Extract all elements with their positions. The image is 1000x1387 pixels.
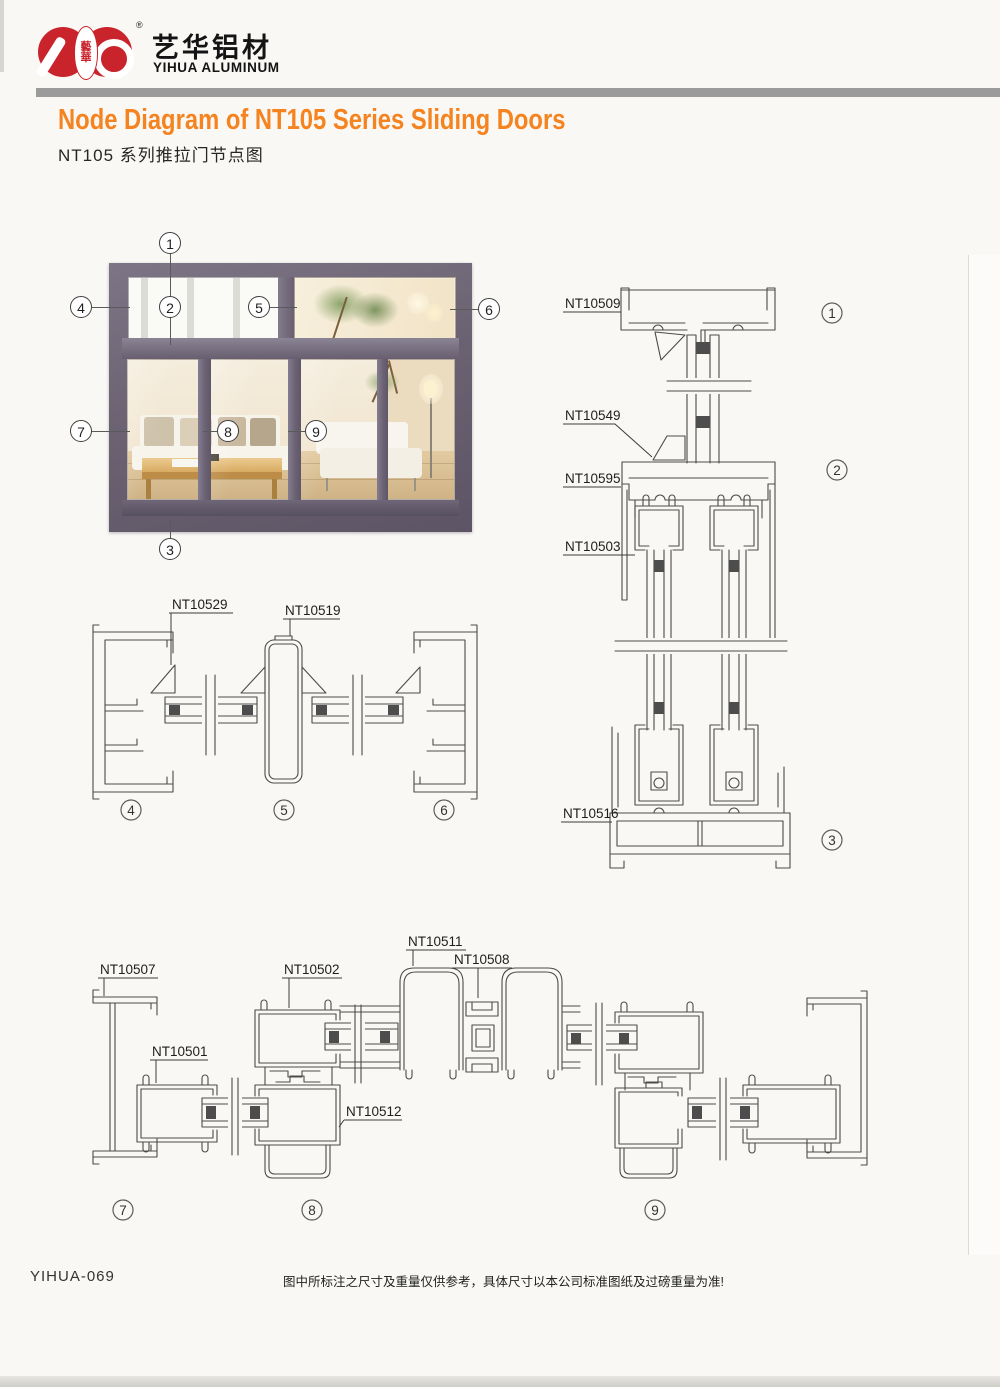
marker-2: 2 — [827, 460, 847, 480]
header-divider — [36, 88, 1000, 97]
svg-text:3: 3 — [828, 833, 836, 848]
marker-4: 4 — [121, 800, 141, 820]
page-code: YIHUA-069 — [30, 1268, 115, 1285]
marker-3: 3 — [822, 830, 842, 850]
logo-ring — [94, 39, 134, 79]
marker-9: 9 — [645, 1200, 665, 1220]
callout-leader — [92, 431, 130, 432]
callout-leader — [92, 307, 130, 308]
yihua-logo-icon: 藝 華 — [38, 24, 148, 80]
part-label-nt10508: NT10508 — [454, 952, 510, 967]
diagram-vertical-section: NT10509 NT10549 NT10595 NT10503 NT10516 … — [555, 278, 855, 878]
callout-leader — [203, 431, 217, 432]
callout-5: 5 — [248, 296, 270, 318]
scan-edge-left — [0, 0, 4, 72]
page-title-en: Node Diagram of NT105 Series Sliding Doo… — [58, 104, 565, 137]
part-label-nt10501: NT10501 — [152, 1044, 208, 1059]
plant-foliage — [351, 292, 399, 328]
door-stile — [288, 359, 301, 500]
callout-leader — [270, 307, 297, 308]
marker-8: 8 — [302, 1200, 322, 1220]
registered-mark: ® — [136, 20, 143, 30]
part-label-nt10595: NT10595 — [565, 471, 621, 486]
svg-text:7: 7 — [119, 1203, 127, 1218]
transom-rail — [122, 338, 459, 359]
glass-sheen — [127, 359, 198, 500]
window-bar — [187, 278, 194, 339]
part-label-nt10516: NT10516 — [563, 806, 619, 821]
callout-7: 7 — [70, 420, 92, 442]
callout-leader — [288, 431, 305, 432]
callout-leader — [450, 309, 478, 310]
marker-6: 6 — [434, 800, 454, 820]
part-label-nt10509: NT10509 — [565, 296, 621, 311]
part-label-nt10503: NT10503 — [565, 539, 621, 554]
svg-text:5: 5 — [280, 803, 288, 818]
marker-7: 7 — [113, 1200, 133, 1220]
svg-text:2: 2 — [833, 463, 841, 478]
callout-3: 3 — [159, 538, 181, 560]
svg-text:8: 8 — [308, 1203, 316, 1218]
callout-leader — [170, 520, 171, 538]
scan-crease-light — [969, 255, 1000, 1255]
svg-text:4: 4 — [127, 803, 135, 818]
diagram-transom-section: NT10529 NT10519 4 5 6 — [85, 595, 495, 825]
logo-seal: 藝 華 — [74, 26, 98, 80]
diagram-door-section: NT10507 NT10501 NT10502 NT10511 NT10508 … — [80, 930, 880, 1230]
logo-seal-char-bottom: 華 — [81, 53, 92, 64]
part-label-nt10502: NT10502 — [284, 962, 340, 977]
callout-8: 8 — [217, 420, 239, 442]
door-bottom-rail — [122, 500, 459, 516]
page-title-cn: NT105 系列推拉门节点图 — [58, 141, 264, 166]
callout-1: 1 — [159, 232, 181, 254]
part-label-nt10519: NT10519 — [285, 603, 341, 618]
door-stile — [198, 359, 211, 500]
callout-9: 9 — [305, 420, 327, 442]
callout-2: 2 — [159, 296, 181, 318]
disclaimer-text: 图中所标注之尺寸及重量仅供参考，具体尺寸以本公司标准图纸及过磅重量为准! — [283, 1271, 724, 1290]
callout-4: 4 — [70, 296, 92, 318]
callout-6: 6 — [478, 298, 500, 320]
part-label-nt10529: NT10529 — [172, 597, 228, 612]
marker-5: 5 — [274, 800, 294, 820]
part-label-nt10507: NT10507 — [100, 962, 156, 977]
brand-name-en: YIHUA ALUMINUM — [153, 60, 280, 75]
lamp-glow — [425, 304, 443, 322]
part-label-nt10549: NT10549 — [565, 408, 621, 423]
window-bar — [141, 278, 148, 339]
marker-1: 1 — [822, 303, 842, 323]
floor-lamp-shade — [424, 380, 437, 398]
svg-text:6: 6 — [440, 803, 448, 818]
svg-text:9: 9 — [651, 1203, 659, 1218]
door-stile — [377, 359, 388, 500]
part-label-nt10511: NT10511 — [408, 934, 463, 949]
logo-slash — [35, 36, 67, 79]
transom-right-glass — [294, 277, 456, 340]
scan-edge-bottom — [0, 1376, 1000, 1387]
catalog-page: 藝 華 ® 艺华铝材 YIHUA ALUMINUM Node Diagram o… — [0, 0, 1000, 1387]
window-bar — [233, 278, 240, 339]
sofa-leg — [414, 478, 416, 491]
svg-text:1: 1 — [828, 306, 836, 321]
part-label-nt10512: NT10512 — [346, 1104, 402, 1119]
